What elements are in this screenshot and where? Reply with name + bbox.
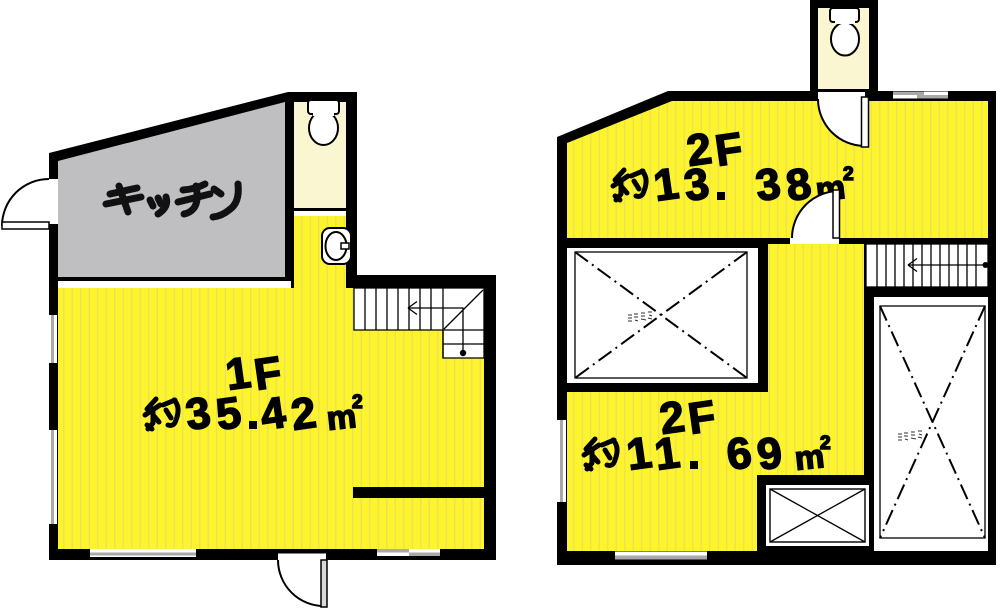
svg-text:2: 2 xyxy=(820,433,831,454)
svg-text:2: 2 xyxy=(352,392,363,413)
svg-text:11: 11 xyxy=(624,427,689,480)
svg-text:35: 35 xyxy=(183,387,250,440)
svg-text:2: 2 xyxy=(843,164,854,185)
svg-text:69: 69 xyxy=(724,427,791,480)
svg-text:13: 13 xyxy=(651,158,718,211)
svg-text:42: 42 xyxy=(258,387,325,440)
